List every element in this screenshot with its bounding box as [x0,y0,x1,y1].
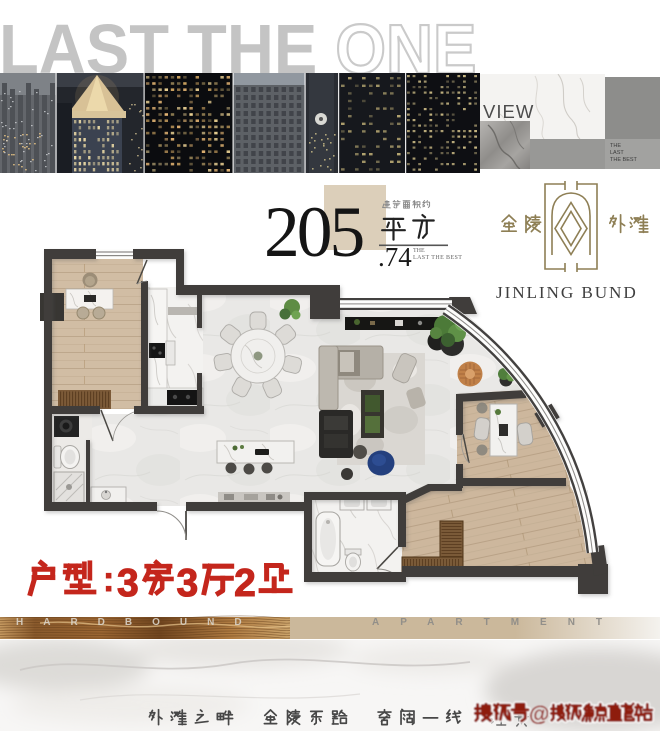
svg-text:3: 3 [117,562,139,604]
svg-text:2: 2 [234,562,256,604]
svg-text:@: @ [529,703,549,726]
svg-text:3: 3 [177,562,199,604]
